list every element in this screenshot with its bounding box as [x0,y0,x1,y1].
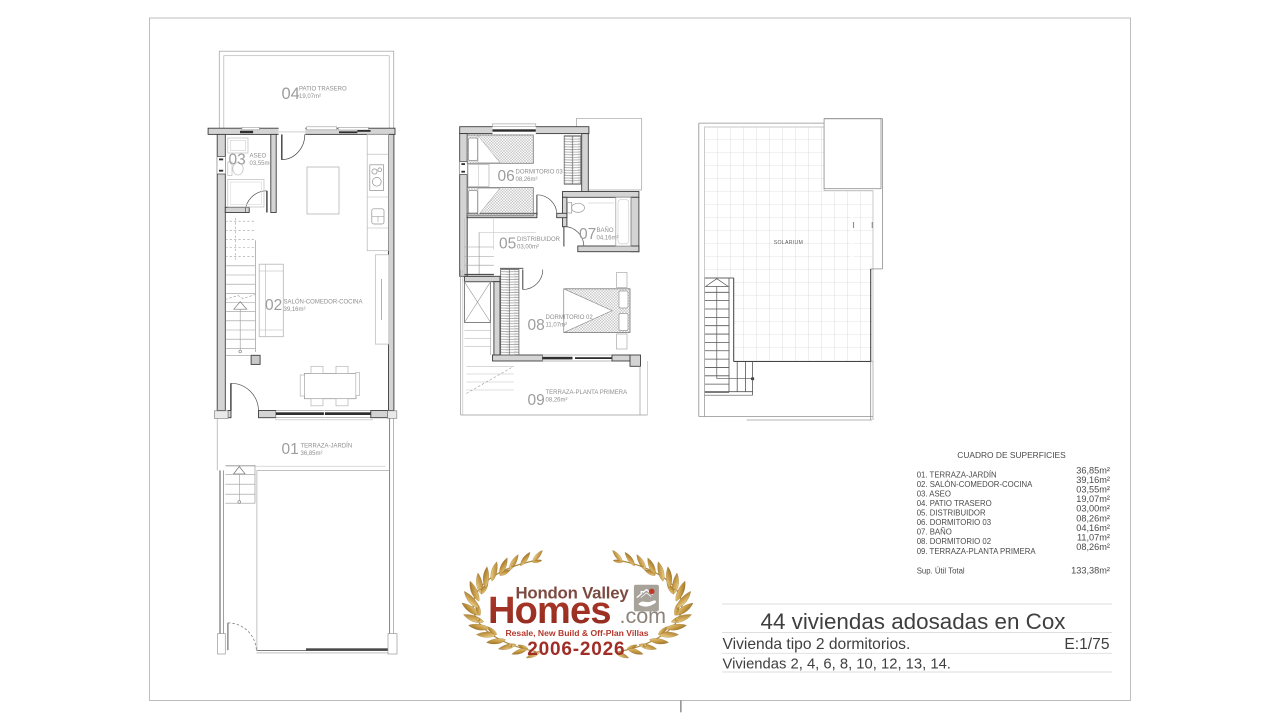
svg-text:19,07m²: 19,07m² [1076,494,1110,504]
svg-text:08,26m²: 08,26m² [1076,513,1110,523]
svg-text:SALÓN-COMEDOR-COCINA: SALÓN-COMEDOR-COCINA [284,299,363,306]
svg-text:08. DORMITORIO 02: 08. DORMITORIO 02 [917,537,991,546]
svg-text:04: 04 [282,85,300,103]
svg-text:133,38m²: 133,38m² [1071,565,1110,575]
svg-text:E:1/75: E:1/75 [1064,636,1109,653]
svg-text:Resale, New Build & Off-Plan V: Resale, New Build & Off-Plan Villas [505,628,648,638]
svg-text:11,07m²: 11,07m² [1077,532,1110,542]
svg-text:03,55m²: 03,55m² [1076,485,1110,495]
svg-text:08: 08 [528,317,545,334]
svg-text:TERRAZA-PLANTA PRIMERA: TERRAZA-PLANTA PRIMERA [546,390,628,396]
svg-text:DORMITORIO 02: DORMITORIO 02 [546,315,594,321]
svg-text:04,16m²: 04,16m² [597,236,619,242]
svg-text:06: 06 [498,168,515,185]
svg-text:05. DISTRIBUIDOR: 05. DISTRIBUIDOR [917,509,986,518]
svg-text:03,00m²: 03,00m² [1076,504,1110,514]
svg-text:Sup. Útil Total: Sup. Útil Total [917,566,965,575]
svg-text:03: 03 [229,152,246,169]
svg-text:39,16m²: 39,16m² [1076,475,1110,485]
svg-text:44 viviendas adosadas en Cox: 44 viviendas adosadas en Cox [761,609,1066,634]
svg-text:39,16m²: 39,16m² [284,307,306,313]
svg-text:04,16m²: 04,16m² [1076,523,1110,533]
svg-text:Homes: Homes [488,590,611,632]
svg-text:08,26m²: 08,26m² [546,398,568,404]
svg-text:08,26m²: 08,26m² [516,177,538,183]
svg-text:36,85m²: 36,85m² [301,451,323,457]
svg-text:11,07m²: 11,07m² [546,323,568,329]
svg-text:36,85m²: 36,85m² [1076,466,1110,476]
svg-text:06. DORMITORIO 03: 06. DORMITORIO 03 [917,518,991,527]
svg-text:TERRAZA-JARDÍN: TERRAZA-JARDÍN [301,443,353,450]
svg-text:02: 02 [265,297,282,314]
svg-text:BAÑO: BAÑO [597,227,614,234]
svg-text:CUADRO DE SUPERFICIES: CUADRO DE SUPERFICIES [957,450,1066,460]
svg-text:07. BAÑO: 07. BAÑO [917,528,952,537]
svg-text:07: 07 [579,226,596,243]
svg-text:DORMITORIO 03: DORMITORIO 03 [516,170,564,176]
svg-text:Vivienda tipo 2 dormitorios.: Vivienda tipo 2 dormitorios. [723,636,911,653]
svg-text:01. TERRAZA-JARDÍN: 01. TERRAZA-JARDÍN [917,470,997,479]
svg-text:03,00m²: 03,00m² [517,245,539,251]
svg-text:19,07m²: 19,07m² [299,94,321,100]
svg-text:03. ASEO: 03. ASEO [917,489,951,498]
svg-text:05: 05 [499,235,516,252]
svg-text:02. SALÓN-COMEDOR-COCINA: 02. SALÓN-COMEDOR-COCINA [917,480,1033,489]
svg-text:SOLARIUM: SOLARIUM [774,240,804,246]
svg-text:04. PATIO TRASERO: 04. PATIO TRASERO [917,499,992,508]
svg-text:2006-2026: 2006-2026 [527,639,625,660]
svg-text:09. TERRAZA-PLANTA PRIMERA: 09. TERRAZA-PLANTA PRIMERA [917,547,1037,556]
svg-text:08,26m²: 08,26m² [1076,542,1110,552]
svg-text:09: 09 [528,392,545,409]
svg-text:PATIO TRASERO: PATIO TRASERO [299,87,347,93]
svg-text:ASEO: ASEO [250,154,267,160]
svg-text:03,55m²: 03,55m² [250,161,272,167]
svg-text:DISTRIBUIDOR: DISTRIBUIDOR [517,237,561,243]
svg-text:Viviendas 2, 4, 6, 8, 10, 12,: Viviendas 2, 4, 6, 8, 10, 12, 13, 14. [723,657,951,673]
svg-text:01: 01 [282,441,299,458]
